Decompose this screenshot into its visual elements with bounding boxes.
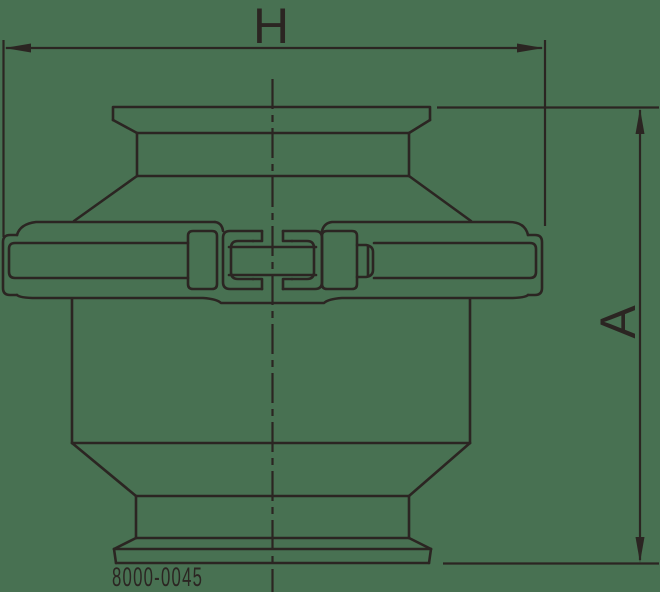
valve-technical-drawing: H A [0,0,660,592]
a-dimension-label: A [590,305,646,339]
technical-drawing-page: H A [0,0,660,592]
clamp-right-lug [283,231,322,289]
part-number-label: 8000-0045 [112,562,203,592]
arrowhead-left [5,44,32,53]
lower-cone [72,443,470,496]
clamp-nut-tab [357,245,373,277]
body-cylinder [72,299,470,443]
arrowhead-up [636,109,645,135]
clamp-left-lug [223,231,262,289]
h-dimension-label: H [253,0,289,54]
clamp-left-arm [3,222,528,303]
arrowhead-right [517,44,544,53]
arrowhead-down [636,537,645,563]
dimension-h: H [4,0,546,237]
